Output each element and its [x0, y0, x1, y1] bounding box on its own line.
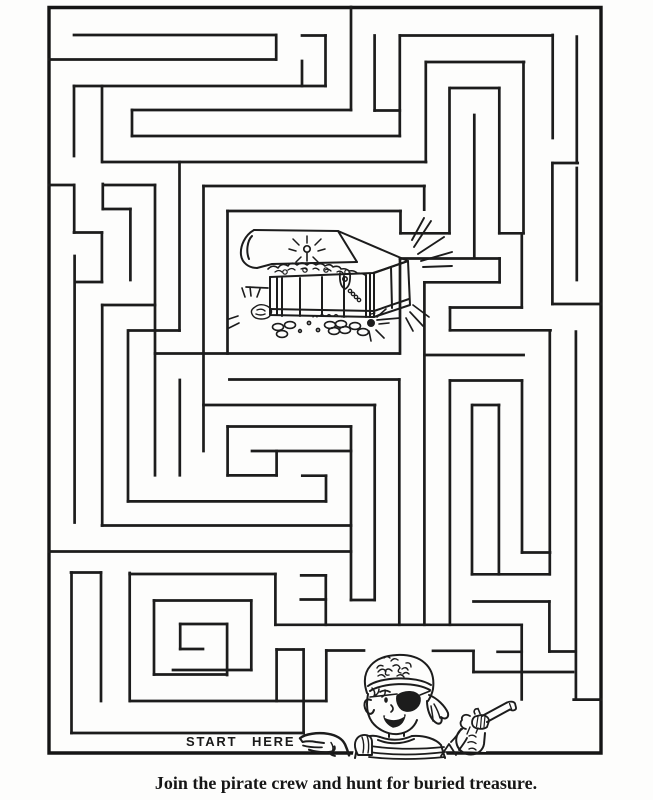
svg-text:START: START: [186, 734, 237, 749]
svg-text:HERE: HERE: [252, 734, 295, 749]
svg-text:Join the pirate crew and hunt: Join the pirate crew and hunt for buried…: [155, 773, 537, 793]
